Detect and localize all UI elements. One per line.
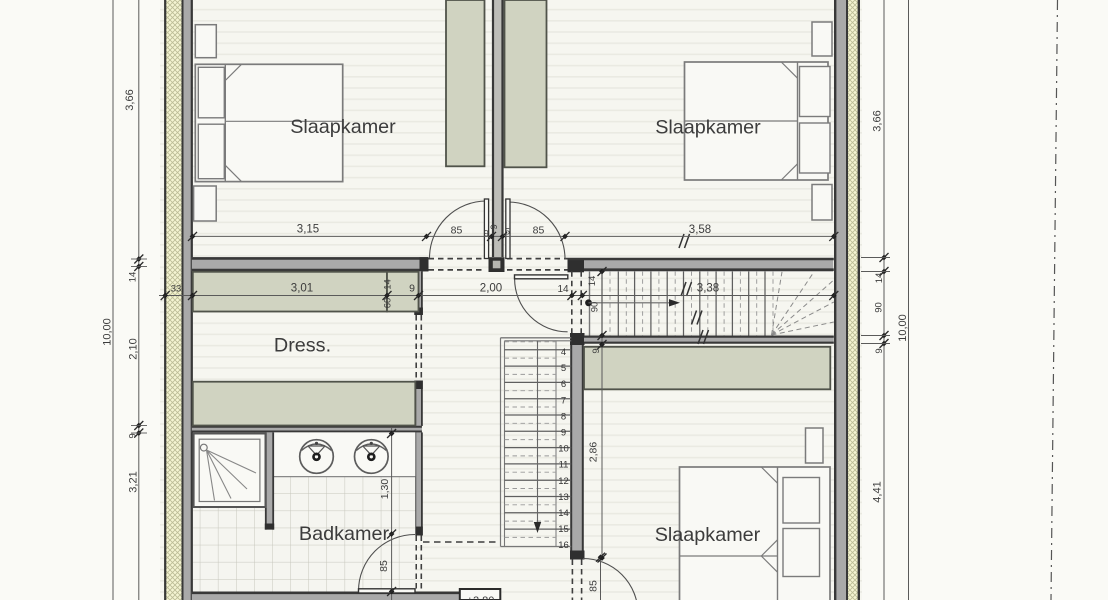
svg-text:90: 90 (590, 302, 601, 313)
svg-text:14: 14 (587, 276, 598, 287)
svg-text:85: 85 (451, 225, 463, 237)
svg-text:16: 16 (558, 540, 569, 551)
svg-text:Badkamer: Badkamer (299, 523, 390, 545)
svg-text:33: 33 (171, 284, 182, 295)
svg-text:3,66: 3,66 (124, 89, 136, 110)
svg-text:1,30: 1,30 (379, 479, 391, 500)
svg-text:14: 14 (383, 279, 394, 290)
svg-text:8: 8 (561, 411, 566, 422)
svg-text:3,38: 3,38 (697, 283, 719, 295)
svg-text:12: 12 (558, 476, 569, 487)
svg-text:9: 9 (591, 348, 602, 353)
svg-text:9: 9 (128, 433, 139, 438)
svg-text:90: 90 (874, 302, 885, 313)
svg-text:Dress.: Dress. (274, 335, 331, 357)
svg-text:14: 14 (558, 508, 569, 519)
svg-text:11: 11 (559, 460, 569, 471)
svg-text:7: 7 (561, 395, 566, 406)
svg-text:15: 15 (558, 524, 569, 535)
svg-text:10: 10 (558, 444, 569, 455)
svg-text:85: 85 (378, 560, 390, 572)
svg-text:3,15: 3,15 (297, 224, 319, 236)
svg-text:5: 5 (561, 363, 566, 374)
svg-text:9: 9 (561, 428, 566, 439)
svg-text:60: 60 (383, 298, 394, 309)
svg-text:9: 9 (874, 348, 885, 353)
svg-text:14: 14 (557, 284, 569, 295)
svg-text:14: 14 (874, 273, 885, 284)
svg-text:5: 5 (505, 227, 510, 237)
svg-text:3,58: 3,58 (689, 224, 711, 236)
svg-text:2,00: 2,00 (480, 283, 502, 295)
svg-text:9: 9 (489, 224, 500, 229)
svg-text:Slaapkamer: Slaapkamer (655, 524, 761, 546)
svg-text:+2,80: +2,80 (467, 595, 495, 600)
svg-text:2,10: 2,10 (128, 338, 140, 359)
svg-text:10,00: 10,00 (897, 314, 909, 342)
svg-text:3,66: 3,66 (872, 110, 884, 131)
svg-text:Slaapkamer: Slaapkamer (655, 117, 761, 139)
svg-text:4,41: 4,41 (872, 481, 884, 502)
svg-text:6: 6 (561, 379, 566, 390)
svg-text:13: 13 (558, 492, 569, 503)
svg-text:2,86: 2,86 (588, 442, 600, 463)
svg-text:85: 85 (588, 580, 600, 592)
svg-text:14: 14 (128, 272, 139, 283)
svg-text:85: 85 (533, 225, 545, 237)
svg-text:3,01: 3,01 (291, 283, 313, 295)
svg-text:Slaapkamer: Slaapkamer (290, 116, 396, 138)
svg-text:3,21: 3,21 (128, 471, 140, 492)
svg-text:9: 9 (409, 283, 415, 295)
svg-text:10,00: 10,00 (102, 318, 114, 346)
svg-text:4: 4 (561, 347, 566, 358)
